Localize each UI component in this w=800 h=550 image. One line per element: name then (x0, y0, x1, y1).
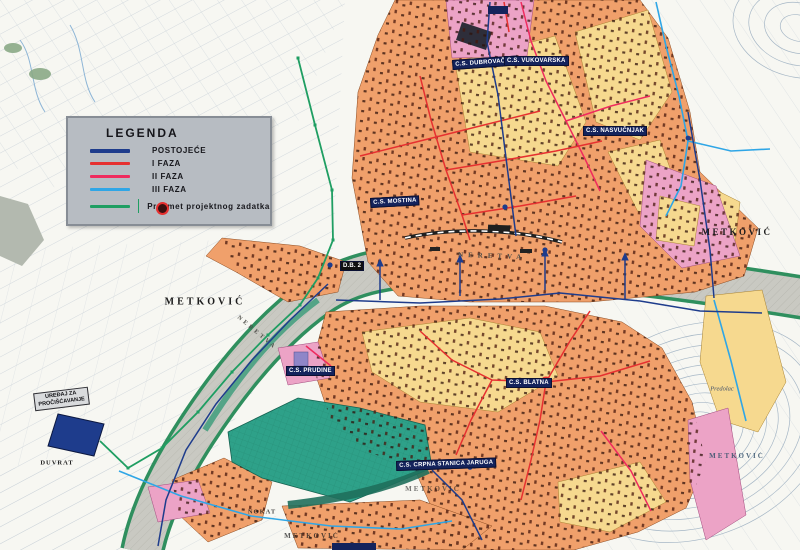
legend-item-faza1: I FAZA (90, 158, 270, 169)
city-label-s: METKOVIĆ (405, 485, 461, 493)
small-label-box-top (488, 6, 508, 14)
small-label-box-bottom (332, 543, 376, 550)
legend-item-project: Predmet projektnog zadatka (90, 200, 270, 212)
legend: LEGENDA POSTOJEĆE I FAZA II FAZA III FAZ… (66, 116, 272, 226)
project-marker-icon (156, 202, 169, 215)
legend-item-faza3: III FAZA (90, 184, 270, 195)
legend-item-postojece: POSTOJEĆE (90, 145, 270, 156)
city-label-ne: METKOVIĆ (701, 227, 772, 237)
city-label-sw: METKOVIĆ (284, 532, 340, 540)
legend-line-faza2 (90, 175, 130, 178)
station-label: C.S. NASVUČNJAK (583, 126, 647, 136)
project-bracket-icon (138, 199, 139, 213)
legend-line-project (90, 205, 130, 208)
station-label: C.S. BLATNA (506, 378, 552, 388)
map-canvas: LEGENDA POSTOJEĆE I FAZA II FAZA III FAZ… (0, 0, 800, 550)
city-label-se: METKOVIĆ (709, 452, 765, 460)
legend-line-postojece (90, 149, 130, 153)
district-label-duvrat: DUVRAT (40, 460, 73, 467)
district-label-predolac: Predolac (710, 386, 734, 393)
legend-item-faza2: II FAZA (90, 171, 270, 182)
station-label: D.B. 2 (340, 261, 364, 271)
station-label: C.S. PRUDINE (286, 366, 335, 376)
legend-line-faza1 (90, 162, 130, 165)
legend-line-faza3 (90, 188, 130, 191)
district-label-nokat: NOKAT (248, 509, 276, 516)
city-label-nw: METKOVIĆ (165, 297, 246, 308)
legend-title: LEGENDA (106, 126, 270, 140)
station-label: C.S. VUKOVARSKA (504, 56, 569, 66)
